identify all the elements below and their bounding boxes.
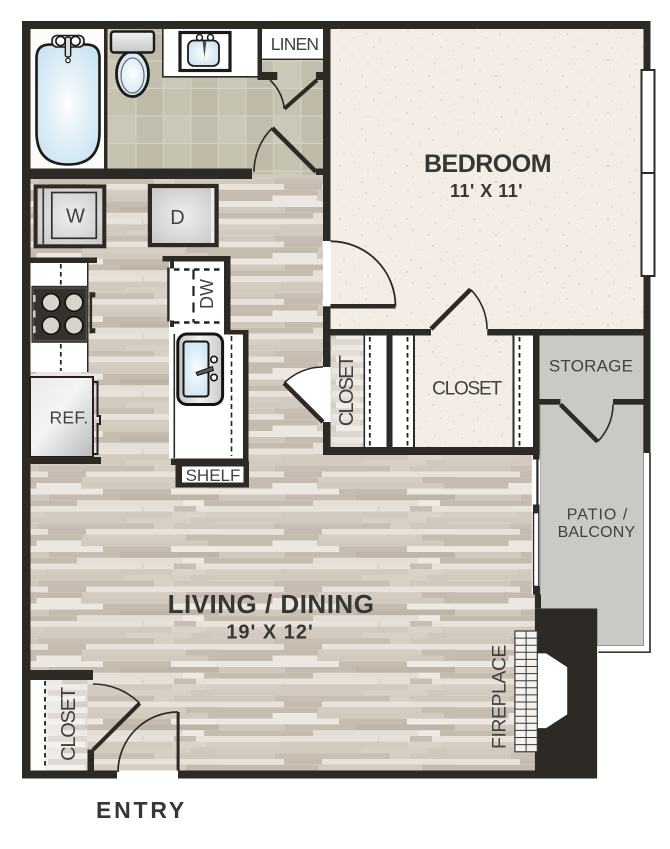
svg-text:CLOSET: CLOSET bbox=[336, 355, 358, 426]
svg-text:STORAGE: STORAGE bbox=[549, 357, 633, 376]
svg-text:LIVING / DINING: LIVING / DINING bbox=[168, 589, 375, 619]
svg-text:19' X 12': 19' X 12' bbox=[226, 622, 313, 644]
svg-text:LINEN: LINEN bbox=[271, 34, 319, 54]
svg-text:DW: DW bbox=[197, 279, 217, 309]
svg-text:CLOSET: CLOSET bbox=[58, 687, 80, 761]
svg-text:REF.: REF. bbox=[49, 408, 88, 428]
svg-text:BALCONY: BALCONY bbox=[558, 524, 636, 541]
svg-text:SHELF: SHELF bbox=[186, 466, 241, 485]
svg-text:BEDROOM: BEDROOM bbox=[424, 150, 551, 178]
svg-text:CLOSET: CLOSET bbox=[432, 379, 502, 400]
svg-text:W: W bbox=[66, 206, 85, 228]
svg-text:ENTRY: ENTRY bbox=[96, 797, 187, 823]
svg-text:11' X 11': 11' X 11' bbox=[450, 181, 523, 201]
svg-text:FIREPLACE: FIREPLACE bbox=[489, 645, 511, 749]
svg-text:D: D bbox=[170, 207, 184, 229]
svg-text:PATIO /: PATIO / bbox=[567, 507, 629, 524]
